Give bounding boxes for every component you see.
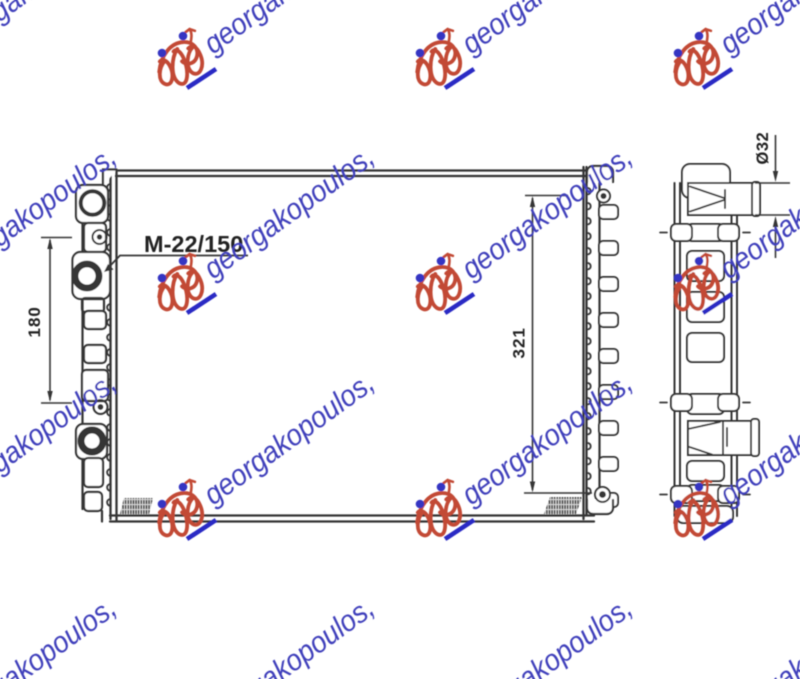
svg-text:georgakopoulos,: georgakopoulos, [456, 591, 639, 679]
svg-text:321: 321 [510, 327, 529, 358]
svg-text:georgakopoulos,: georgakopoulos, [0, 0, 123, 61]
svg-text:180: 180 [25, 306, 44, 337]
svg-text:georgakopoulos,: georgakopoulos, [456, 366, 639, 511]
svg-text:georgakopoulos,: georgakopoulos, [714, 591, 800, 679]
svg-text:Ø32: Ø32 [754, 132, 772, 165]
svg-text:georgakopoulos,: georgakopoulos, [198, 0, 381, 61]
svg-text:georgakopoulos,: georgakopoulos, [714, 0, 800, 61]
svg-text:georgakopoulos,: georgakopoulos, [198, 366, 381, 511]
svg-text:georgakopoulos,: georgakopoulos, [456, 0, 639, 61]
svg-text:georgakopoulos,: georgakopoulos, [0, 591, 123, 679]
svg-text:georgakopoulos,: georgakopoulos, [198, 591, 381, 679]
svg-text:georgakopoulos,: georgakopoulos, [198, 140, 381, 285]
